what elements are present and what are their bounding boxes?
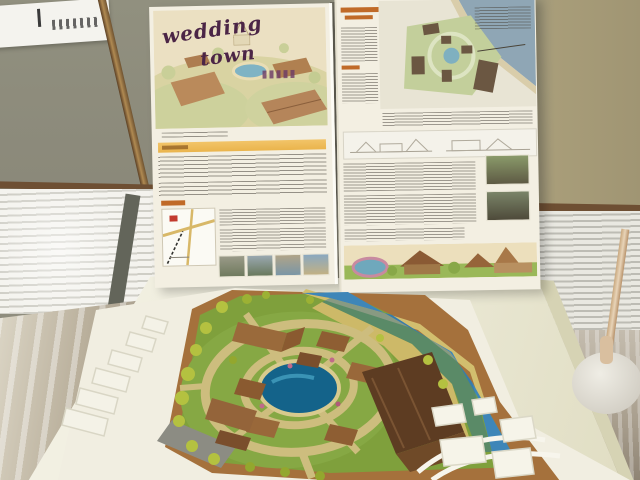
west-access-path xyxy=(180,386,206,388)
flower-bed-2 xyxy=(330,358,335,363)
central-pond xyxy=(259,361,339,415)
flower-bed-1 xyxy=(288,364,293,369)
flower-bed-3 xyxy=(336,402,341,407)
architectural-model xyxy=(0,0,640,480)
exhibition-photo: wedding town xyxy=(0,0,640,480)
flower-bed-4 xyxy=(260,404,265,409)
